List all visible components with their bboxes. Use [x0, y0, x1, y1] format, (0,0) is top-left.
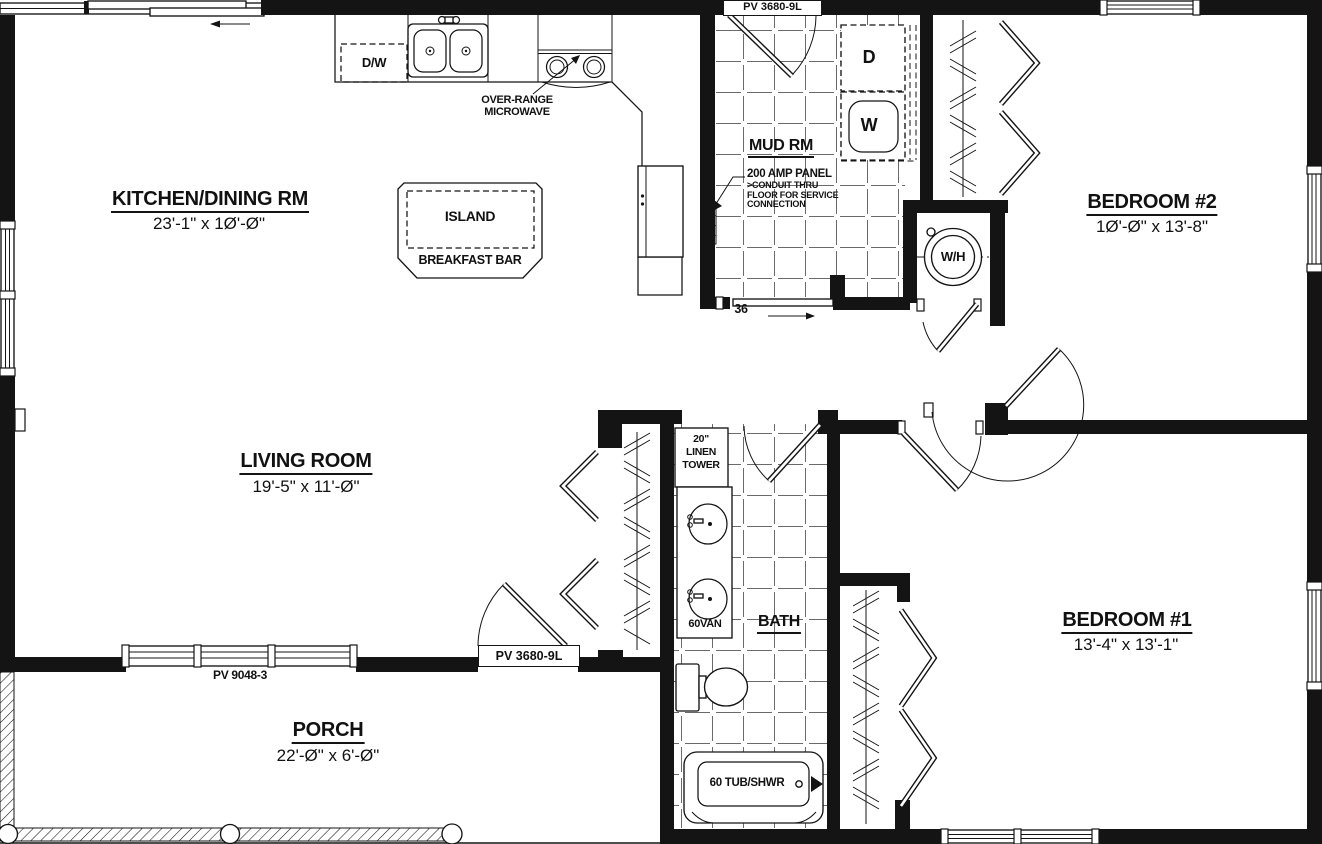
mud-door-tag: PV 3680-9L	[723, 0, 822, 16]
electrical-panel-note: 200 AMP PANEL >CONDUIT THRU FLOOR FOR SE…	[747, 168, 838, 210]
microwave-leader-arrow	[533, 55, 580, 94]
walls	[0, 0, 1322, 844]
porch-room-title: PORCH	[292, 720, 365, 744]
kitchen-sink-icon	[408, 17, 488, 78]
window-living-room	[122, 645, 357, 667]
kitchen-room-dims: 23'-1" x 1Ø'-Ø"	[153, 215, 265, 233]
living-window-tag: PV 9048-3	[213, 669, 267, 682]
microwave-label: OVER-RANGE MICROWAVE	[481, 94, 553, 118]
water-heater-label: W/H	[941, 250, 965, 264]
window-bedroom2-right	[1307, 166, 1322, 272]
dishwasher-label: D/W	[362, 56, 386, 70]
water-heater-closet-door	[917, 299, 981, 351]
bedroom1-door	[898, 421, 983, 490]
living-room-dims: 19'-5" x 11'-Ø"	[252, 478, 359, 496]
front-entry-door	[478, 584, 566, 646]
slide-direction-arrow	[210, 21, 250, 28]
floor-plan: KITCHEN/DINING RM 23'-1" x 1Ø'-Ø" LIVING…	[0, 0, 1322, 844]
entry-door-tag: PV 3680-9L	[478, 645, 580, 667]
porch-post	[0, 825, 18, 844]
porch-post	[442, 824, 462, 844]
bedroom2-room-dims: 1Ø'-Ø" x 13'-8"	[1096, 218, 1208, 236]
bedroom2-closet	[950, 20, 1037, 197]
porch-post	[221, 825, 240, 844]
vanity-label: 60VAN	[688, 619, 721, 631]
bath-title: BATH	[757, 614, 801, 634]
bedroom1-room-dims: 13'-4" x 13'-1"	[1074, 636, 1179, 654]
porch-room-dims: 22'-Ø" x 6'-Ø"	[277, 747, 380, 765]
breakfast-bar-label: BREAKFAST BAR	[418, 254, 521, 267]
washer-label: W	[861, 116, 878, 135]
living-room-closet	[563, 432, 650, 650]
window-kitchen-left	[0, 221, 15, 376]
kitchen-room-title: KITCHEN/DINING RM	[111, 189, 309, 213]
base-cabinet	[638, 257, 682, 295]
living-room-title: LIVING ROOM	[239, 451, 372, 475]
tub-label: 60 TUB/SHWR	[710, 777, 785, 789]
vanity-icon	[677, 487, 732, 638]
bedroom1-room-title: BEDROOM #1	[1061, 610, 1192, 634]
pocket-door-width-label: 36	[734, 303, 747, 316]
wall-outlet-box	[15, 409, 25, 431]
bedroom2-room-title: BEDROOM #2	[1086, 192, 1217, 216]
window-bedroom1-right	[1307, 582, 1322, 690]
floor-plan-linework	[0, 0, 1322, 844]
window-bedroom2-top	[1100, 0, 1200, 15]
mudroom-title: MUD RM	[748, 138, 814, 158]
window-bedroom1-bottom	[941, 829, 1099, 844]
island-label: ISLAND	[445, 209, 495, 224]
sliding-patio-door	[0, 0, 268, 28]
linen-tower-label: 20" LINEN TOWER	[682, 433, 719, 472]
dryer-label: D	[863, 48, 876, 67]
bedroom1-closet	[853, 590, 934, 824]
refrigerator-icon	[638, 166, 683, 257]
